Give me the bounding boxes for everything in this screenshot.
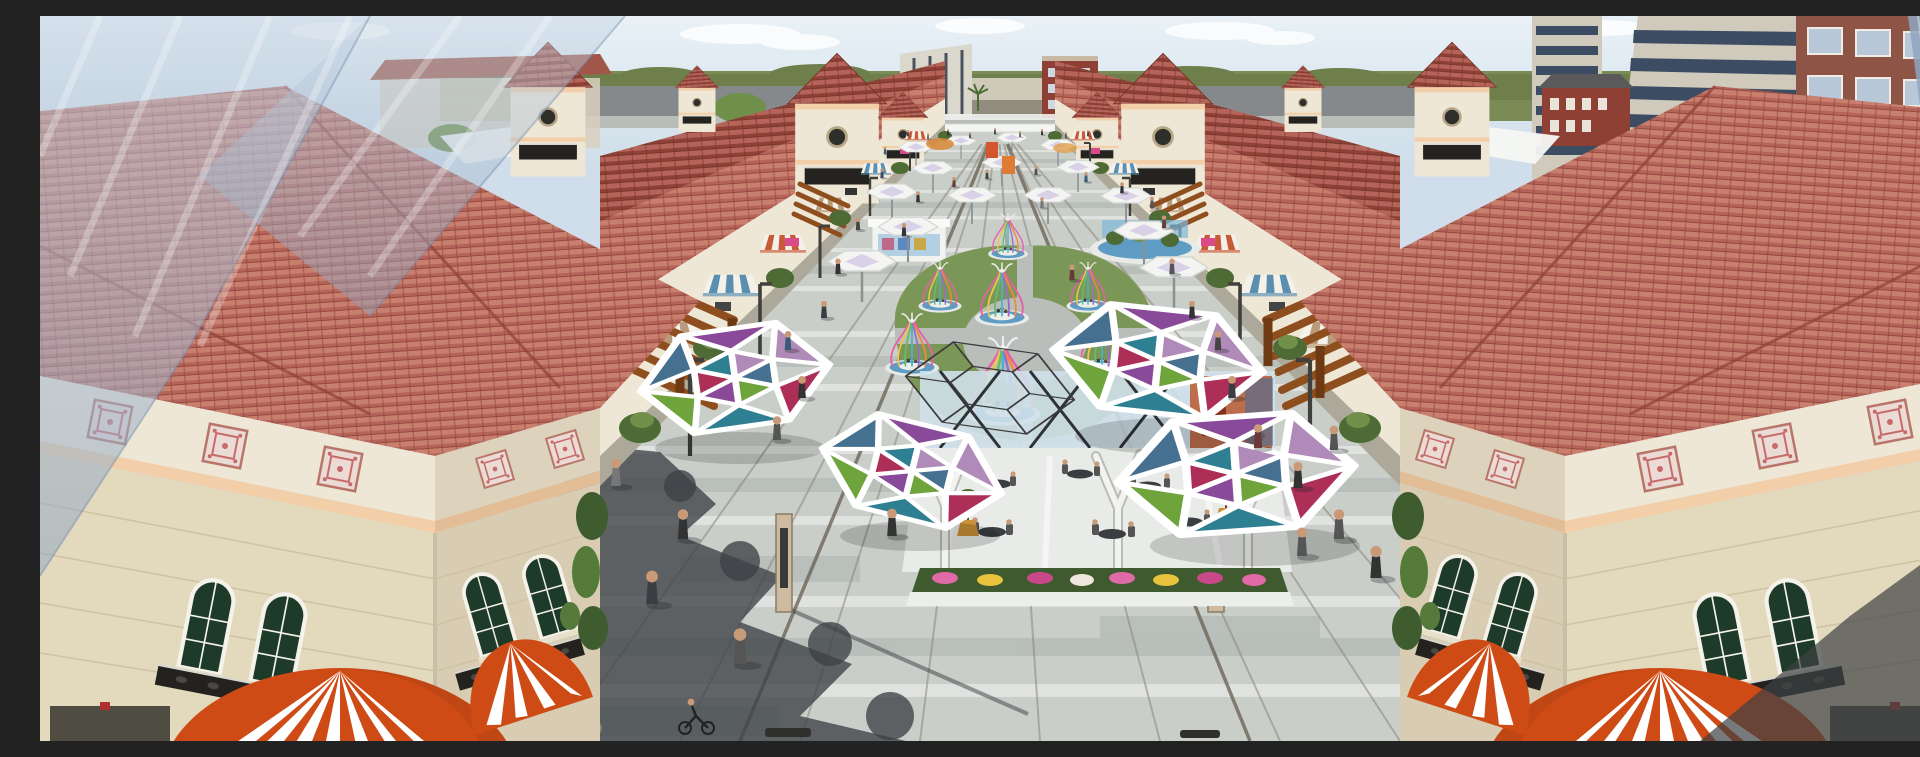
ticket-kiosk bbox=[776, 514, 792, 612]
storefront-base bbox=[50, 702, 170, 741]
architectural-rendering bbox=[40, 16, 1920, 741]
flower-bed bbox=[906, 568, 1294, 606]
bench bbox=[765, 728, 811, 737]
bench bbox=[1180, 730, 1220, 738]
